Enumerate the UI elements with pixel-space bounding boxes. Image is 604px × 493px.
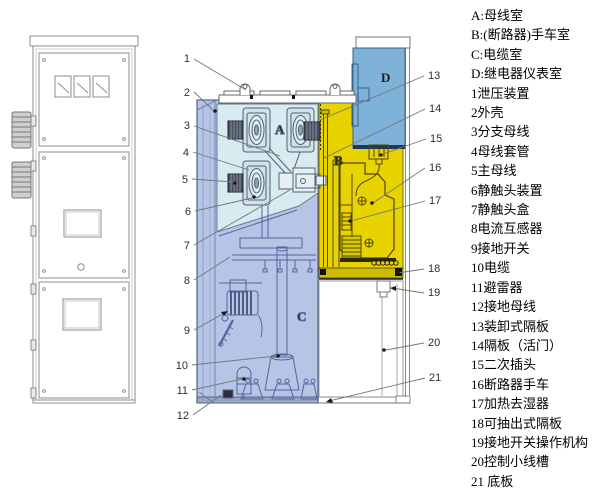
legend-item: C:电缆室 [471, 45, 603, 64]
callout-number: 20 [428, 337, 440, 349]
panel-meters [55, 76, 109, 97]
callout-number: 3 [184, 120, 190, 132]
legend-item: 15二次插头 [471, 355, 603, 374]
door-window [64, 210, 101, 237]
callout-number: 14 [429, 103, 441, 115]
lower-door [39, 282, 129, 398]
legend-item: B:(断路器)手车室 [471, 25, 603, 44]
legend-item: 20控制小线槽 [471, 452, 603, 471]
top-plate [219, 84, 356, 103]
legend-item: 6静触头装置 [471, 181, 603, 200]
compartment-a-label: A [275, 122, 285, 137]
compartment-d-region [353, 48, 405, 148]
callout-number: 17 [429, 195, 441, 207]
callout-number: 15 [430, 133, 442, 145]
compartment-c-label: C [297, 309, 306, 324]
legend: A:母线室 B:(断路器)手车室 C:电缆室 D:继电器仪表室 1泄压装置 2外… [471, 6, 603, 491]
callout-number: 7 [184, 240, 190, 252]
cabinet-top-cap [30, 36, 138, 46]
side-bushings [12, 112, 31, 198]
callout-number: 16 [429, 162, 441, 174]
legend-item: 5主母线 [471, 161, 603, 180]
ground-busbar [223, 390, 233, 398]
legend-item: 13装卸式隔板 [471, 317, 603, 336]
door-window [63, 299, 101, 330]
callout-number: 1 [184, 53, 190, 65]
compartment-d: D [352, 37, 410, 149]
legend-item: 21 底板 [471, 472, 603, 491]
legend-item: 7静触头盒 [471, 200, 603, 219]
upper-door [39, 53, 129, 146]
compartment-d-label: D [381, 70, 390, 85]
section-view: D [197, 37, 410, 403]
legend-item: 9接地开关 [471, 239, 603, 258]
callout-number: 21 [429, 372, 441, 384]
callout-number: 9 [184, 325, 190, 337]
legend-item: 16断路器手车 [471, 375, 603, 394]
switchgear-structure-figure: D [0, 0, 604, 493]
callout-number: 10 [176, 360, 188, 372]
legend-item: 18可抽出式隔板 [471, 414, 603, 433]
legend-item: 1泄压装置 [471, 84, 603, 103]
callout-number: 4 [183, 147, 189, 159]
legend-item: 8电流互感器 [471, 219, 603, 238]
legend-item: 17加热去湿器 [471, 394, 603, 413]
front-view-cabinet [12, 36, 138, 403]
legend-item: 11避雷器 [471, 278, 603, 297]
callout-numbers-right: 13 14 15 16 17 18 19 20 21 [428, 70, 442, 384]
callout-number: 5 [182, 174, 188, 186]
callout-number: 2 [184, 87, 190, 99]
legend-item: 14隔板（活门） [471, 336, 603, 355]
legend-item: 12接地母线 [471, 297, 603, 316]
middle-door [39, 152, 129, 278]
callout-number: 19 [428, 287, 440, 299]
legend-item: 2外壳 [471, 103, 603, 122]
compartment-b-label: B [334, 153, 343, 168]
legend-item: 19接地开关操作机构 [471, 433, 603, 452]
callout-number: 6 [185, 206, 191, 218]
callout-number: 13 [428, 70, 440, 82]
legend-item: 3分支母线 [471, 122, 603, 141]
legend-item: A:母线室 [471, 6, 603, 25]
callout-number: 18 [428, 263, 440, 275]
callout-number: 8 [184, 275, 190, 287]
callout-number: 11 [177, 385, 188, 397]
rear-wall [406, 48, 410, 397]
legend-item: 4母线套管 [471, 142, 603, 161]
legend-item: D:继电器仪表室 [471, 64, 603, 83]
handcart-rail [319, 268, 403, 278]
ribbed-shutter-element [372, 261, 398, 265]
callout-number: 12 [177, 410, 189, 422]
callout-numbers-left: 1 2 3 4 5 6 7 8 9 10 11 12 [176, 53, 191, 422]
legend-item: 10电缆 [471, 258, 603, 277]
